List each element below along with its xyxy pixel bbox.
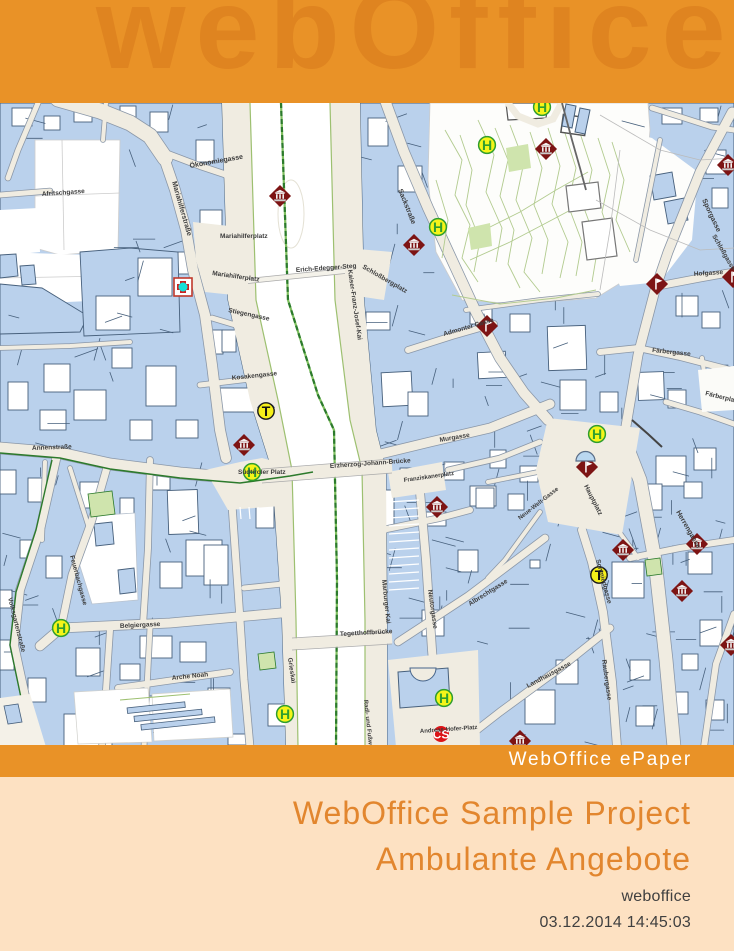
svg-text:H: H [592,426,602,442]
svg-text:H: H [439,690,449,706]
svg-text:Mariahilferplatz: Mariahilferplatz [220,233,268,240]
svg-text:H: H [482,137,492,153]
svg-text:T: T [262,403,271,419]
svg-text:H: H [56,620,66,636]
svg-text:Südtiroler Platz: Südtiroler Platz [238,469,286,476]
svg-text:H: H [433,219,443,235]
svg-text:Annenstraße: Annenstraße [32,444,72,452]
svg-text:H: H [537,103,547,115]
svg-text:H: H [280,706,290,722]
